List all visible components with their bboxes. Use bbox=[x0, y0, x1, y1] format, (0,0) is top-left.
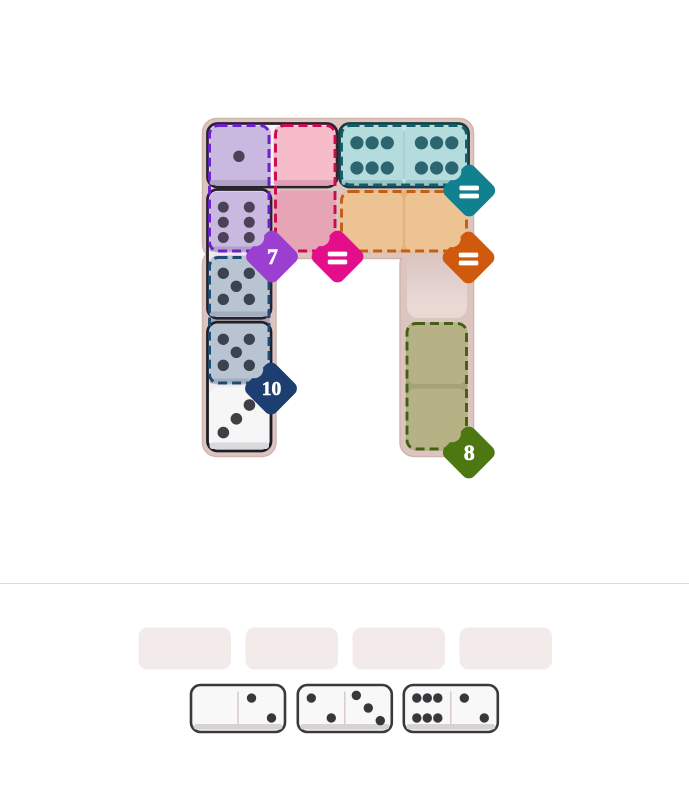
svg-text:10: 10 bbox=[262, 379, 282, 400]
svg-text:8: 8 bbox=[464, 440, 475, 465]
svg-text:7: 7 bbox=[267, 244, 278, 269]
